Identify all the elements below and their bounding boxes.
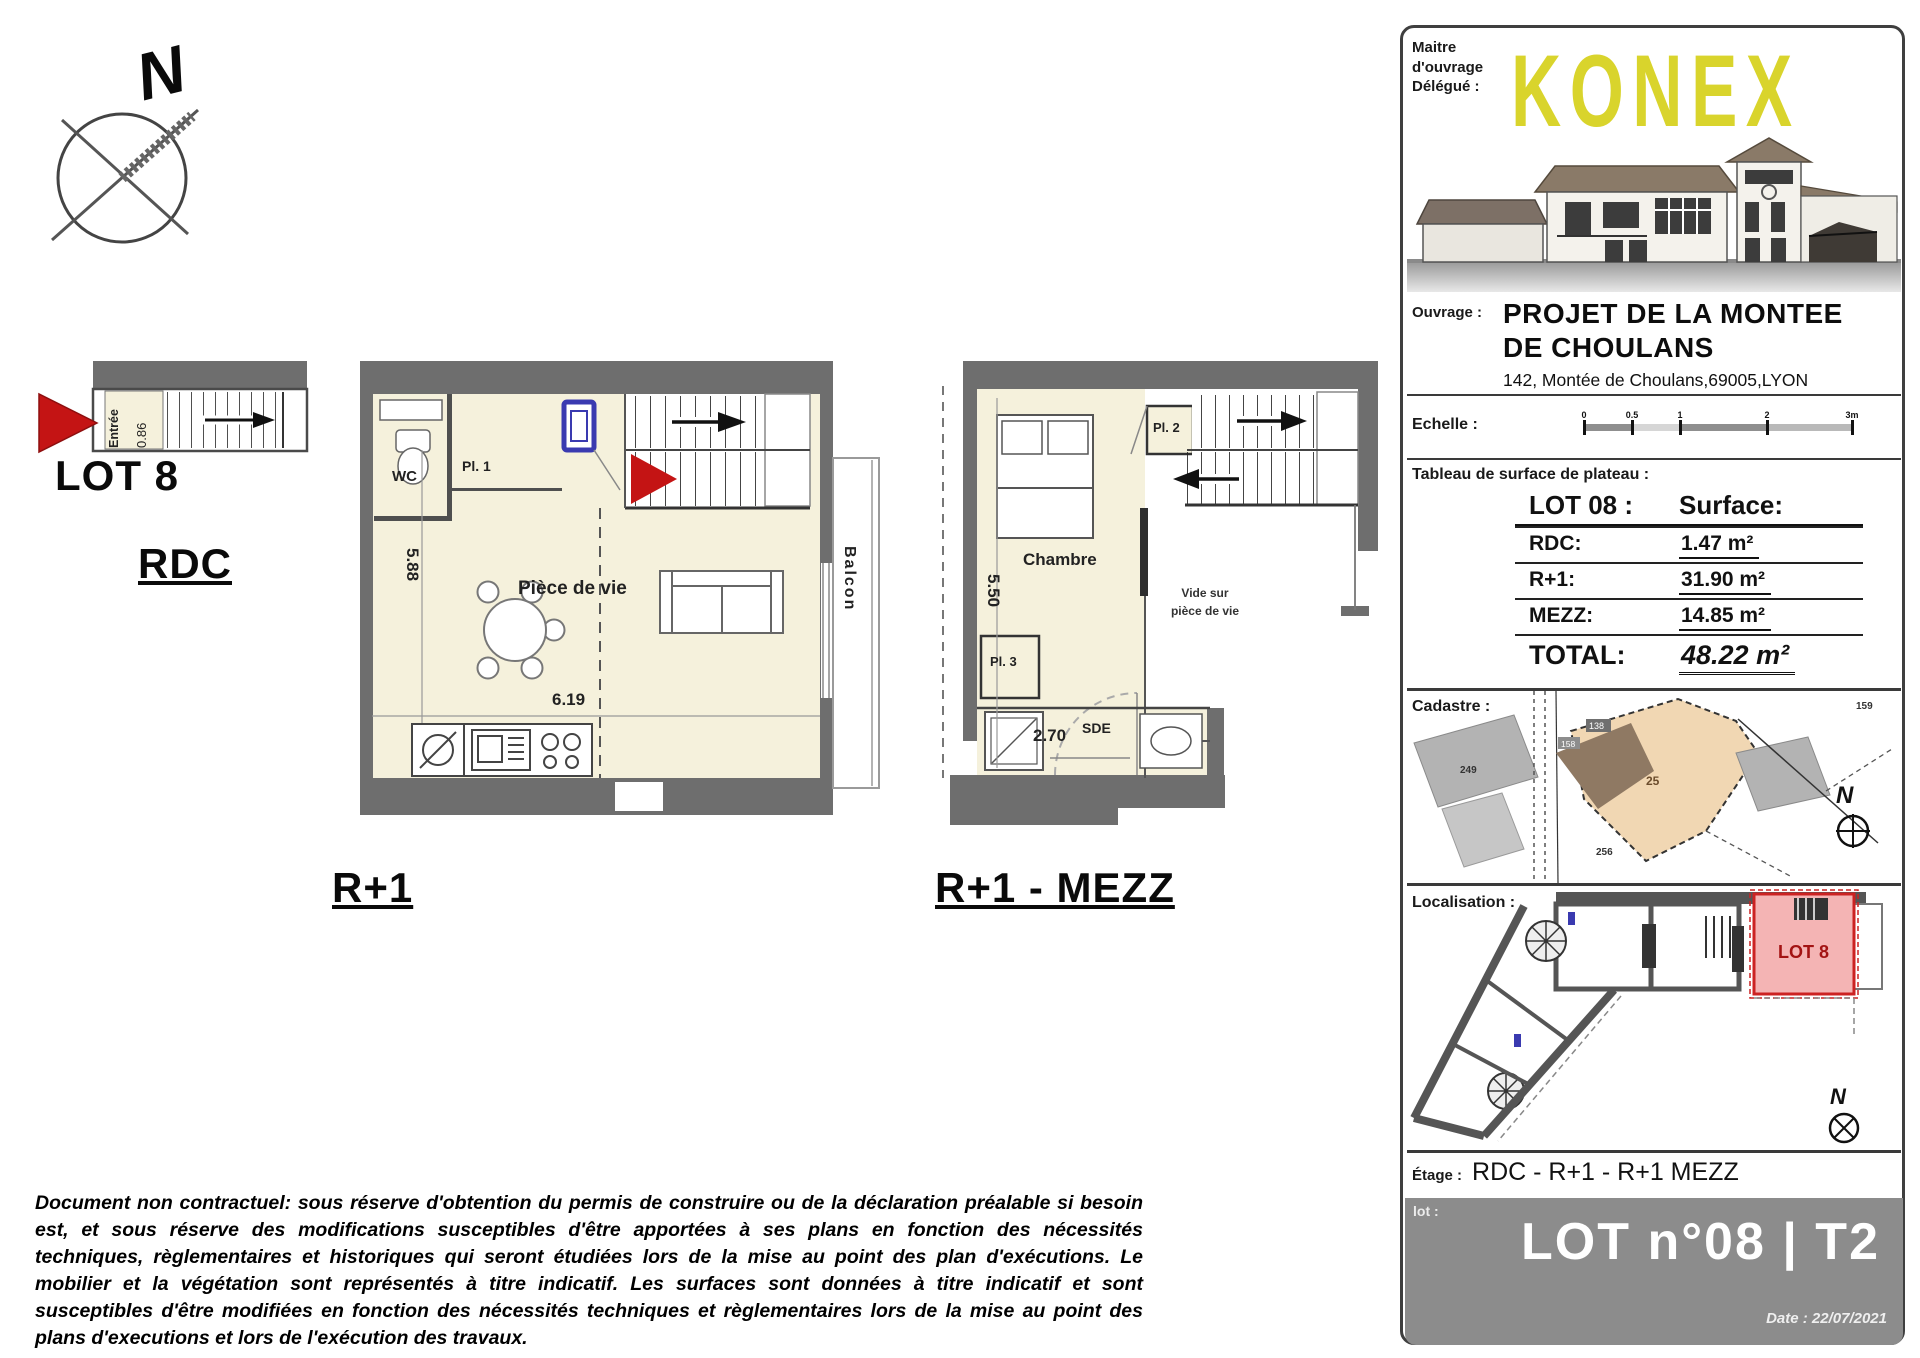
cadastre-label: Cadastre : <box>1412 698 1490 716</box>
scale-tick-3: 2 <box>1764 410 1769 420</box>
surface-total-label: TOTAL: <box>1529 640 1679 671</box>
cadastre-parcel-256: 256 <box>1596 847 1613 858</box>
surface-row-value: 1.47 m² <box>1679 532 1759 559</box>
surface-row-mezz: MEZZ: 14.85 m² <box>1515 598 1863 634</box>
footer-lot-title: LOT n°08 | T2 <box>1460 1212 1880 1272</box>
surface-row-value: 31.90 m² <box>1679 568 1771 595</box>
title-block: Maitre d'ouvrage Délégué : KONEX <box>1400 25 1905 1345</box>
surface-row-r1: R+1: 31.90 m² <box>1515 562 1863 598</box>
echelle-label: Echelle : <box>1412 416 1478 434</box>
building-elevation <box>1407 136 1901 296</box>
r1-floor-label: R+1 <box>332 864 413 912</box>
r1-dim-height: 5.88 <box>402 548 422 620</box>
plan-rdc-drawing <box>35 356 310 461</box>
surface-row-total: TOTAL: 48.22 m² <box>1515 634 1863 678</box>
scale-tick-4: 3m <box>1845 410 1858 420</box>
surface-row-label: RDC: <box>1529 532 1679 556</box>
cadastre-parcel-25: 25 <box>1646 774 1660 788</box>
rdc-entry-label: Entrée <box>107 392 121 448</box>
ouvrage-label: Ouvrage : <box>1412 304 1482 321</box>
mezz-bedroom-label: Chambre <box>1023 550 1097 570</box>
footer-lot-label: lot : <box>1413 1203 1439 1219</box>
r1-dim-width: 6.19 <box>552 690 585 710</box>
localisation-lot8-label: LOT 8 <box>1778 942 1829 962</box>
compass-n-label: N <box>128 31 193 115</box>
surface-header-lot: LOT 08 : <box>1529 490 1679 521</box>
etage-label: Étage : <box>1412 1167 1462 1184</box>
surface-table: LOT 08 : Surface: RDC: 1.47 m² R+1: 31.9… <box>1515 486 1863 678</box>
scale-bar: 0 0.5 1 2 3m <box>1583 410 1853 440</box>
etage-value: RDC - R+1 - R+1 MEZZ <box>1472 1158 1739 1187</box>
footer-date-label: Date : <box>1766 1310 1808 1327</box>
plan-r1: WC Pl. 1 Pièce de vie Balcon 5.88 6.19 <box>350 358 885 820</box>
konex-logo: KONEX <box>1511 32 1801 149</box>
surface-row-label: R+1: <box>1529 568 1679 592</box>
r1-living-label: Pièce de vie <box>518 578 627 600</box>
rdc-entry-dim: 0.86 <box>134 394 149 448</box>
mezz-closet2-label: Pl. 2 <box>1153 420 1180 435</box>
cadastre-north-label: N <box>1836 782 1854 809</box>
surface-table-header: LOT 08 : Surface: <box>1515 486 1863 526</box>
title-block-footer: lot : LOT n°08 | T2 Date : 22/07/2021 <box>1405 1198 1903 1345</box>
mezz-closet3-label: Pl. 3 <box>990 654 1017 669</box>
footer-date-value: 22/07/2021 <box>1812 1310 1887 1327</box>
r1-balcony-label: Balcon <box>840 546 858 611</box>
project-title-line2: DE CHOULANS <box>1503 332 1714 364</box>
localisation-north-label: N <box>1830 1084 1847 1109</box>
scale-tick-0: 0 <box>1581 410 1586 420</box>
cadastre-parcel-159: 159 <box>1856 701 1873 712</box>
mezz-dim-width: 2.70 <box>1033 726 1066 746</box>
cadastre-map: 138 158 249 25 256 159 N <box>1406 691 1902 883</box>
project-address: 142, Montée de Choulans,69005,LYON <box>1503 370 1808 391</box>
project-title-line1: PROJET DE LA MONTEE <box>1503 298 1843 330</box>
r1-closet1-label: Pl. 1 <box>462 458 491 474</box>
disclaimer-text: Document non contractuel: sous réserve d… <box>35 1190 1143 1351</box>
plan-rdc: Entrée 0.86 <box>35 356 310 461</box>
rdc-floor-label: RDC <box>138 540 232 588</box>
surface-header-surface: Surface: <box>1679 490 1783 521</box>
footer-date: Date : 22/07/2021 <box>1766 1310 1887 1327</box>
cadastre-parcel-249: 249 <box>1460 765 1477 776</box>
surface-row-rdc: RDC: 1.47 m² <box>1515 526 1863 562</box>
maitre-ouvrage-label: Maitre d'ouvrage Délégué : <box>1412 38 1483 97</box>
north-compass-icon: N <box>40 28 230 258</box>
mezz-floor-label: R+1 - MEZZ <box>935 864 1175 912</box>
mezz-shower-label: SDE <box>1082 720 1111 736</box>
plan-mezz: Chambre Pl. 2 Pl. 3 SDE 2.70 5.50 Vide s… <box>935 358 1390 863</box>
mezz-void-label: Vide sur pièce de vie <box>1157 584 1253 620</box>
mezz-void-line2: pièce de vie <box>1157 602 1253 620</box>
surface-row-label: MEZZ: <box>1529 604 1679 628</box>
scale-tick-1: 0.5 <box>1626 410 1639 420</box>
rdc-lot-label: LOT 8 <box>55 452 179 500</box>
cadastre-parcel-158: 158 <box>1561 739 1575 749</box>
surface-total-value: 48.22 m² <box>1679 640 1795 675</box>
mezz-dim-height: 5.50 <box>983 574 1003 646</box>
cadastre-parcel-138: 138 <box>1589 721 1604 731</box>
tableau-label: Tableau de surface de plateau : <box>1412 466 1649 484</box>
mezz-void-line1: Vide sur <box>1157 584 1253 602</box>
localisation-map: LOT 8 N <box>1406 886 1902 1150</box>
localisation-label: Localisation : <box>1412 894 1515 912</box>
r1-wc-label: WC <box>392 468 417 485</box>
etage-row: Étage : RDC - R+1 - R+1 MEZZ <box>1412 1158 1739 1187</box>
scale-tick-2: 1 <box>1677 410 1682 420</box>
surface-row-value: 14.85 m² <box>1679 604 1771 631</box>
